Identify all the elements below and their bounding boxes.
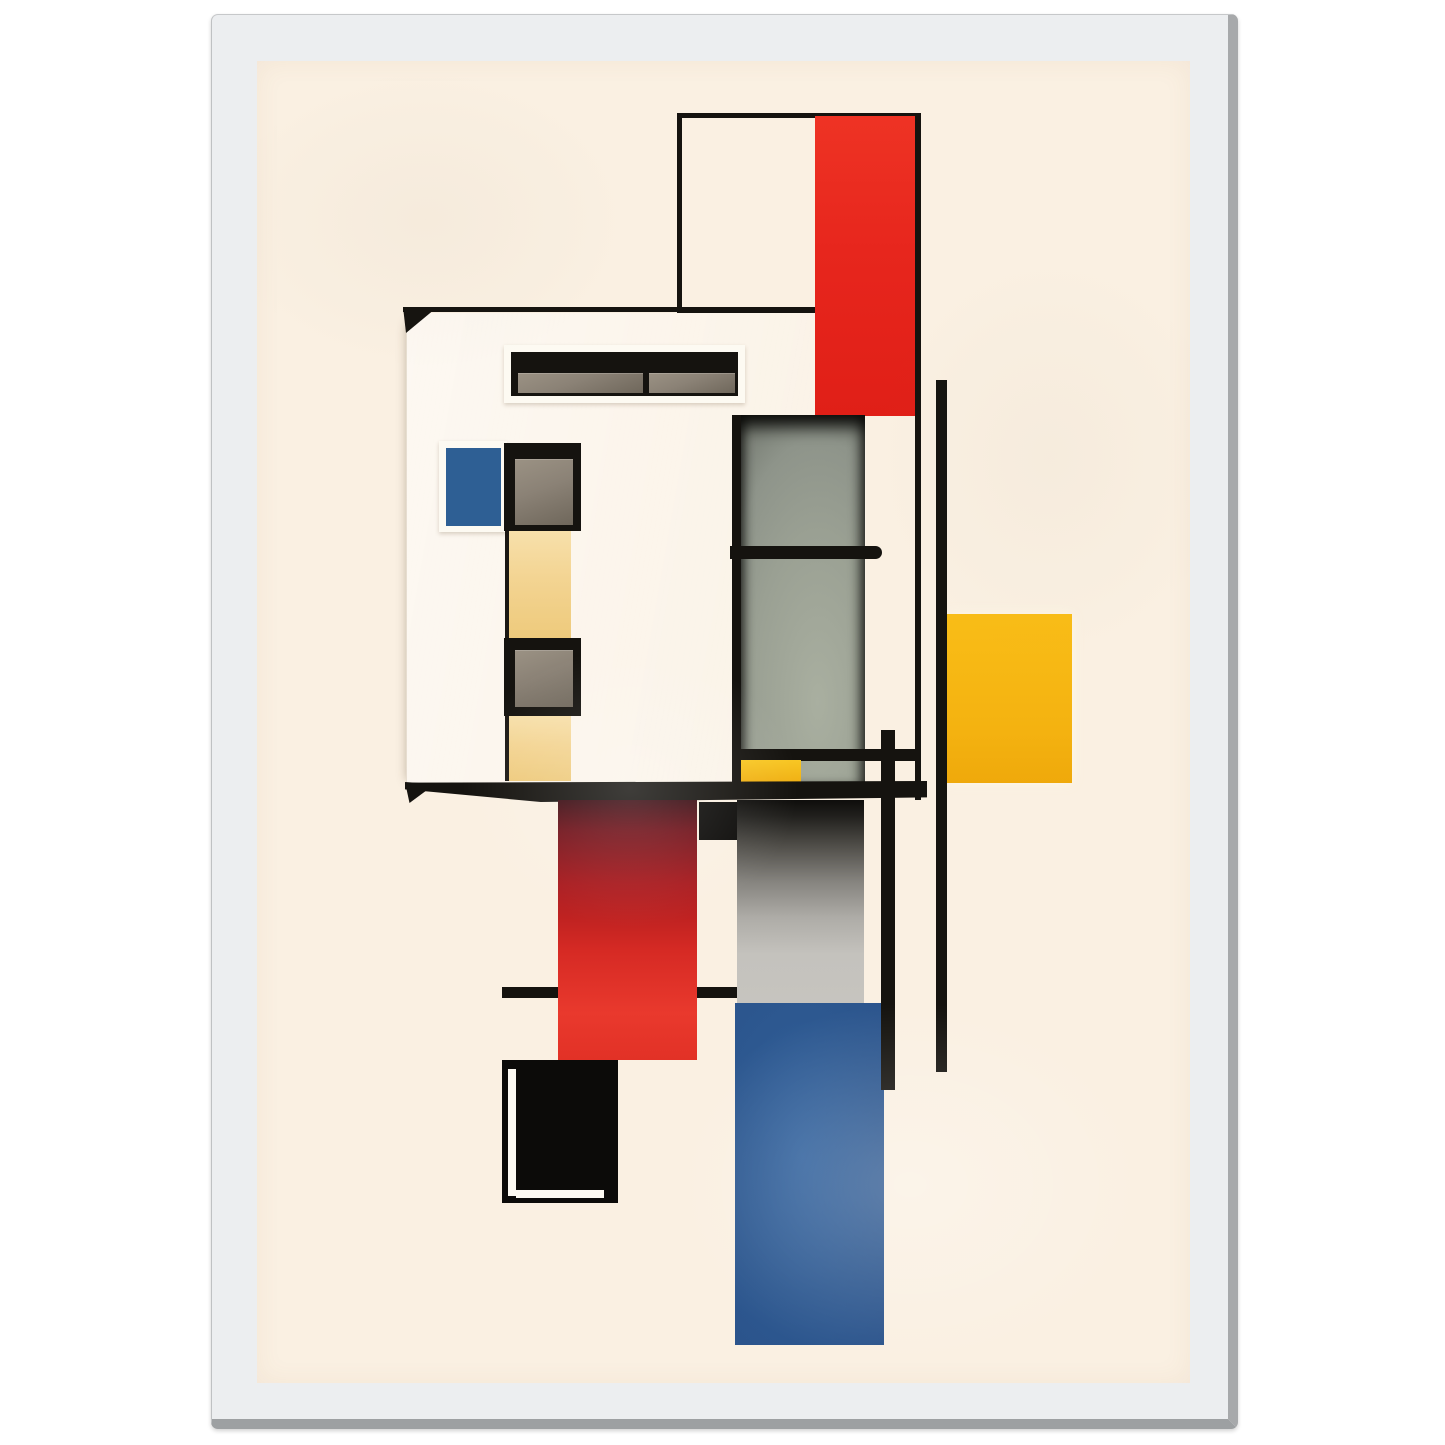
window-strip-pane-right xyxy=(649,373,735,393)
blue-column-lower xyxy=(735,1003,884,1345)
yellow-square-large xyxy=(946,614,1072,783)
floor-slab xyxy=(405,781,927,802)
blue-window xyxy=(446,448,501,526)
bauhaus-composition-artwork xyxy=(257,61,1190,1383)
black-square-small xyxy=(699,802,738,840)
gray-column-lower xyxy=(737,800,864,1003)
window-lower-pane xyxy=(515,650,573,707)
picture-frame xyxy=(211,14,1238,1429)
yellow-column-lower xyxy=(505,716,571,781)
red-block-top xyxy=(815,116,917,416)
frame-box-highlight-left xyxy=(508,1069,516,1196)
post-line xyxy=(881,730,895,1090)
vertical-line-inner xyxy=(915,113,921,800)
window-upper-pane xyxy=(515,459,573,525)
window-strip-pane-left xyxy=(518,373,643,393)
yellow-column-upper xyxy=(505,531,571,638)
frame-box-highlight-bottom xyxy=(516,1190,604,1198)
poster-paper xyxy=(257,61,1190,1383)
slab-arrow xyxy=(405,782,435,803)
vertical-line-outer xyxy=(936,380,947,1072)
black-frame-box xyxy=(502,1060,618,1203)
product-photo-backdrop xyxy=(0,0,1445,1445)
gray-niche xyxy=(732,415,865,783)
red-column-lower xyxy=(558,800,697,1060)
niche-shelf-bar xyxy=(730,546,882,559)
